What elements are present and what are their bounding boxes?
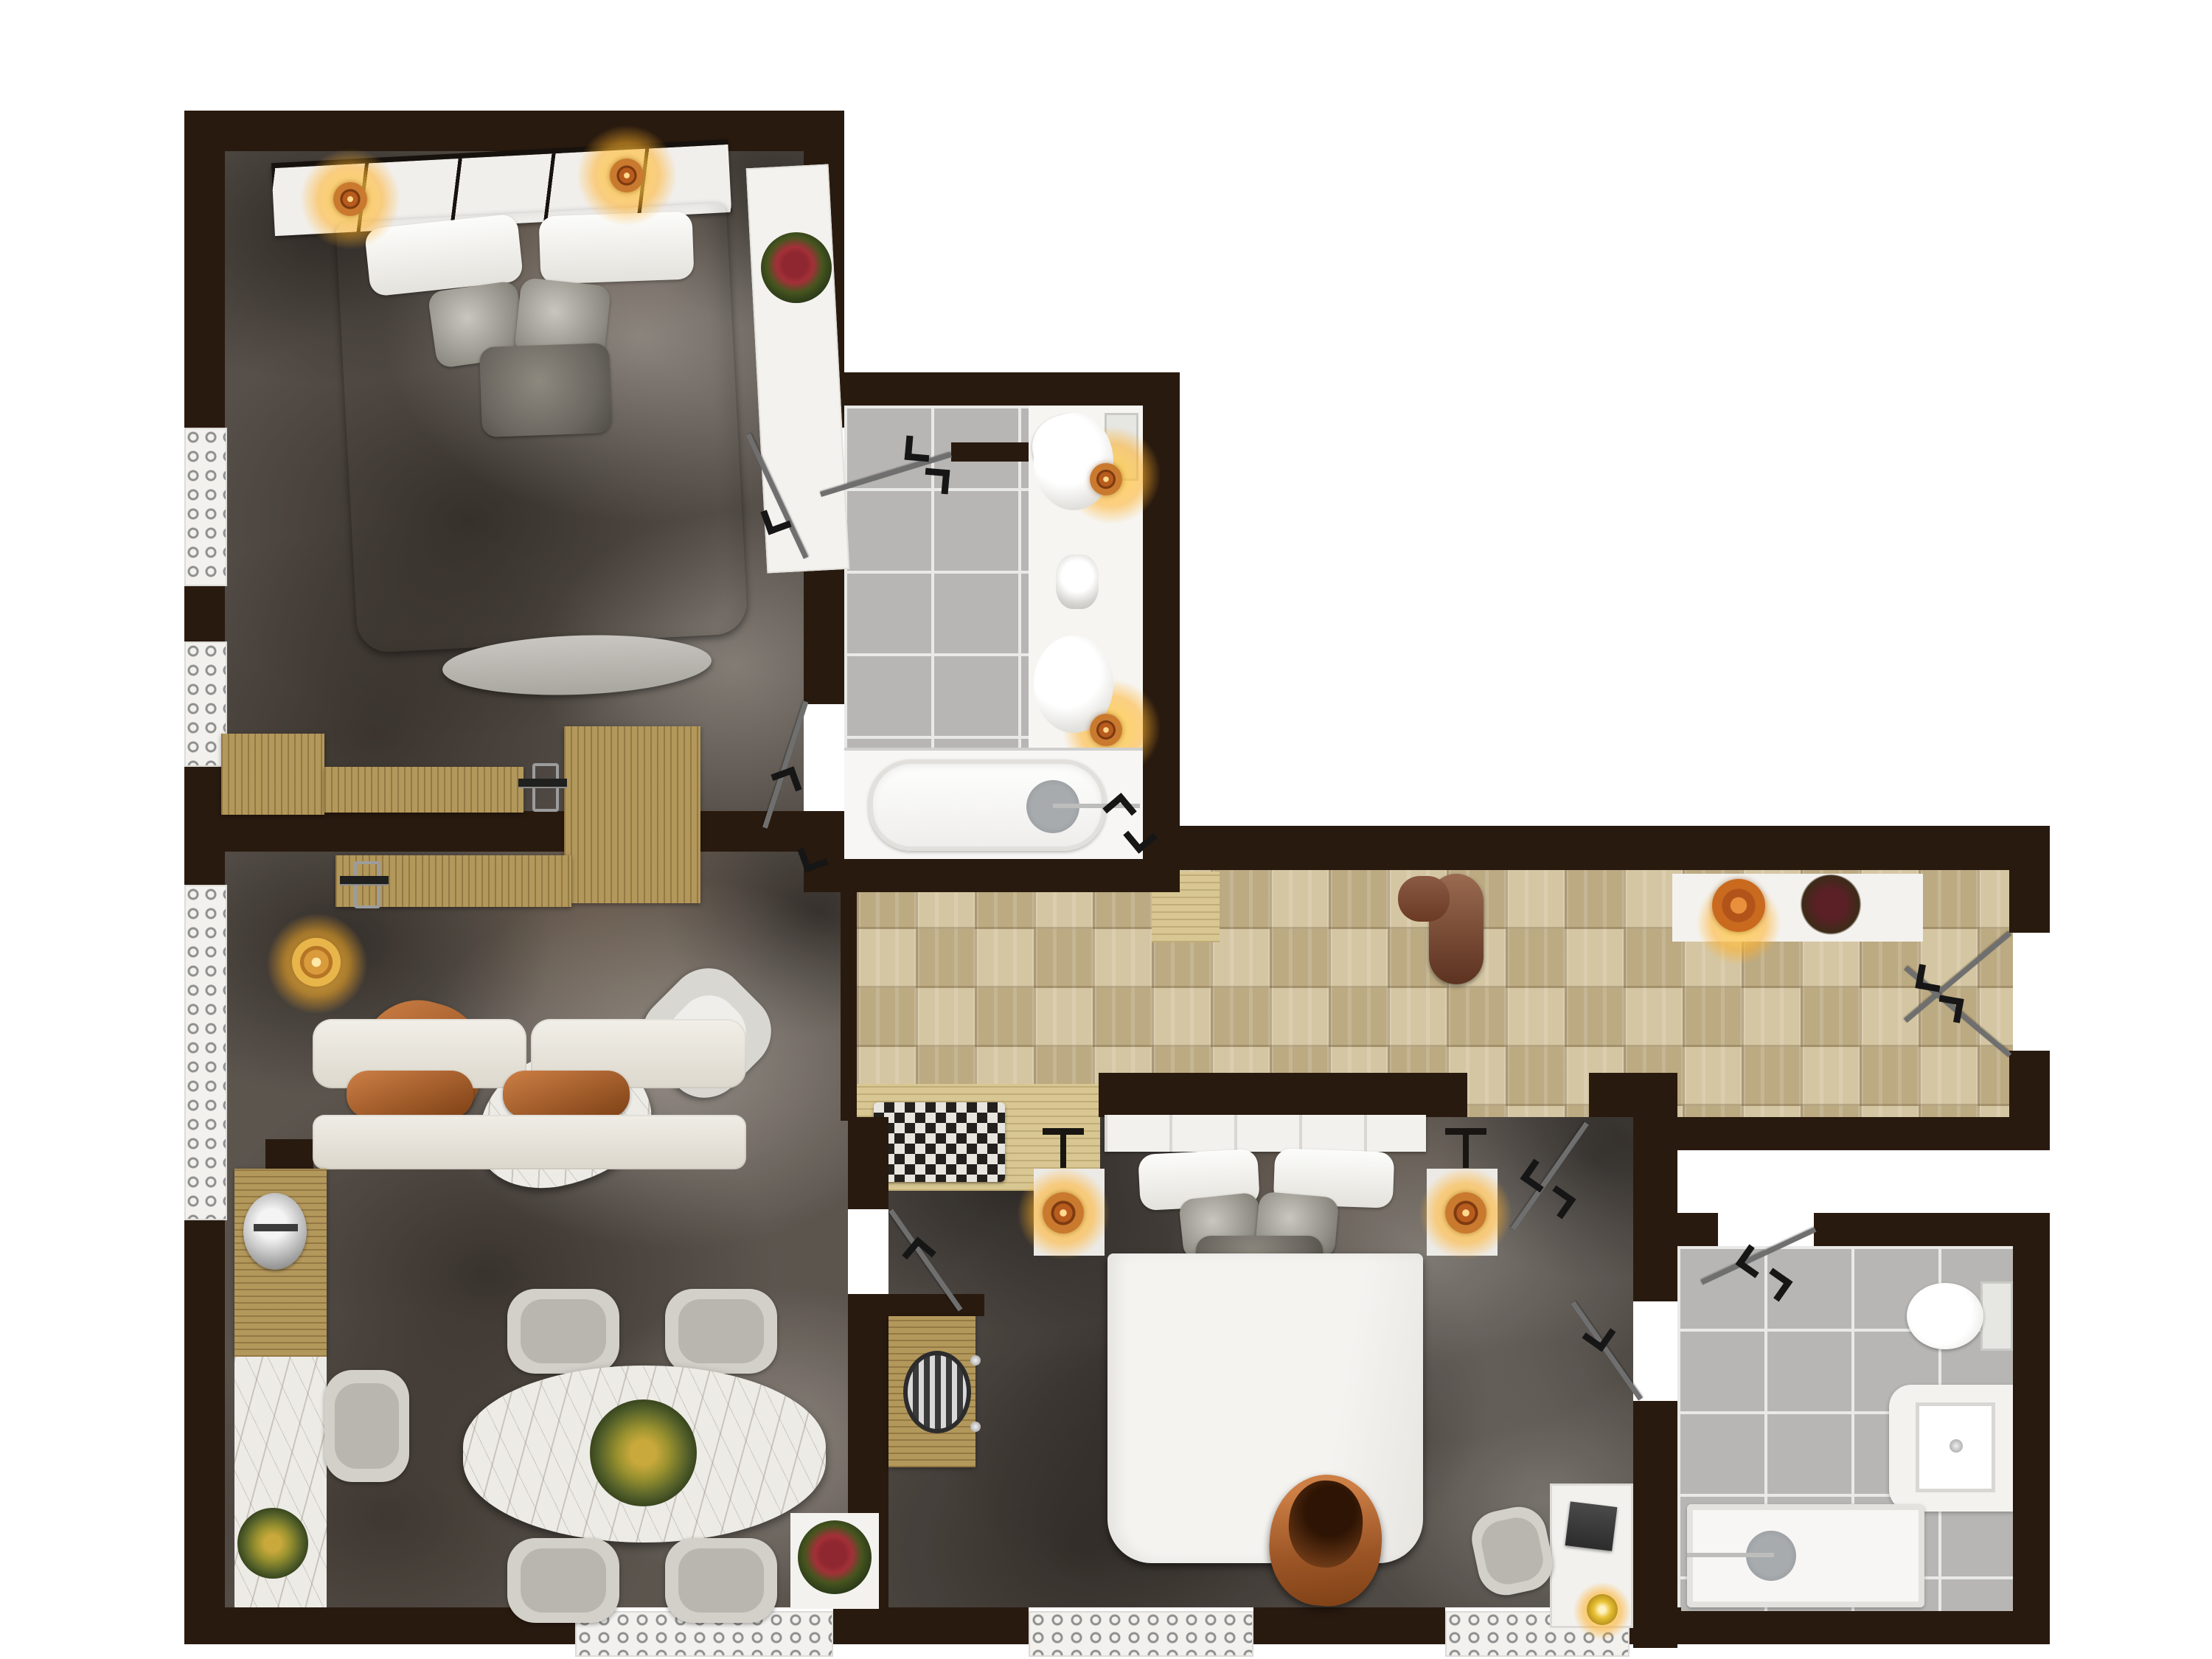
vanity2-faucet-icon (1950, 1439, 1963, 1453)
monitor-b-base (354, 861, 381, 908)
monitor-a-base (532, 763, 560, 811)
wall-bed2-right-1 (1633, 1073, 1677, 1301)
wall-divider-dining-bed2-1 (848, 1117, 888, 1209)
wall-bath-main-top (804, 372, 1180, 406)
side-table-right (564, 726, 700, 903)
window-living-left (184, 885, 227, 1220)
bed2-headboard (1105, 1115, 1426, 1152)
sideboard-silver-lamp-icon (243, 1193, 307, 1270)
wall-bath-main-bottom (804, 859, 1180, 892)
sofa-pillow-right (503, 1071, 630, 1118)
sconce-lamp-left-icon (333, 182, 367, 216)
lamp-arm-left-icon (1060, 1133, 1066, 1168)
monitor-a-screen (518, 779, 567, 787)
wall-left-2 (184, 586, 225, 641)
monitor-a-icon (516, 759, 569, 810)
lamp-arm-right-icon (1463, 1133, 1469, 1168)
runner-red-plant-icon (761, 232, 832, 303)
wall-hall-bottom-right (1644, 1117, 2050, 1150)
dining-chair-seat (521, 1548, 606, 1613)
sconce-lamp-right-icon (610, 159, 644, 192)
wall-living-hall-divider (841, 892, 857, 1121)
dining-chair-left (324, 1370, 409, 1482)
door-handle-icon (905, 436, 931, 462)
sofa-pillow-left (347, 1071, 473, 1118)
console-lamp-icon (1712, 879, 1765, 932)
lamp-arm-left-bar (1043, 1128, 1084, 1135)
sink-lamp-bottom-icon (1090, 714, 1122, 746)
toilet2-tank (1980, 1281, 2013, 1351)
desk-upper (324, 767, 524, 813)
vanity-faucet-icon (1056, 554, 1099, 609)
sink-bowl-top-icon (1034, 413, 1113, 510)
floor-lamp-icon (292, 938, 341, 987)
laptop-icon (1565, 1501, 1618, 1551)
bed-fur-throw (479, 343, 612, 437)
bedside-lamp-right-icon (1445, 1192, 1486, 1234)
wall-bath2-bottom (1644, 1611, 2050, 1644)
wall-nook-stub (848, 1294, 984, 1316)
wall-hall-top (1180, 826, 2050, 870)
desk-knob-2-icon (970, 1422, 981, 1432)
dining-chair-seat (678, 1548, 764, 1613)
wall-bottom-3 (1253, 1607, 1445, 1644)
window-bed2-bottom-1 (1029, 1611, 1253, 1657)
wall-bottom-2 (833, 1607, 1029, 1644)
sofa-back (313, 1115, 746, 1169)
coat-rack-arm (1398, 876, 1450, 922)
entrance-handle-2-icon (1935, 995, 1964, 1023)
desk-lamp-icon (1587, 1594, 1618, 1625)
dining-chair-top-left (507, 1289, 619, 1374)
sideboard-lamp-bar (254, 1224, 298, 1231)
dining-chair-seat (678, 1299, 764, 1363)
dining-chair-seat (521, 1299, 606, 1363)
shower-arm-line (1687, 1553, 1774, 1557)
desk-knob-1-icon (970, 1355, 981, 1366)
lamp-arm-right-bar (1445, 1128, 1486, 1135)
dining-red-plant-icon (798, 1520, 872, 1594)
dining-chair-bottom-left (507, 1538, 619, 1623)
dining-chair-top-right (665, 1289, 777, 1374)
wall-partition-desks (184, 811, 844, 852)
wall-bath2-right (2013, 1213, 2050, 1644)
wall-left-4 (184, 1220, 225, 1644)
gold-plant-icon (237, 1508, 308, 1579)
sink-lamp-top-icon (1090, 463, 1122, 495)
wall-left-1 (184, 111, 225, 428)
dining-chair-seat (335, 1383, 399, 1469)
wall-bath-main-left-2 (804, 557, 844, 704)
door-handle-icon (924, 468, 950, 495)
monitor-b-icon (338, 858, 391, 906)
side-table-left (221, 734, 324, 815)
desk-chair-seat (1478, 1514, 1547, 1589)
monitor-b-screen (340, 876, 389, 884)
entrance-handle-1-icon (1915, 964, 1943, 992)
dining-chair-bottom-right (665, 1538, 777, 1623)
wall-bath2-top-1 (1644, 1213, 1718, 1246)
window-masterbed-1 (184, 428, 227, 586)
wall-bed2-top-left (1099, 1073, 1467, 1117)
bw-entry-rug (874, 1102, 1005, 1182)
wall-masterbed-top (184, 111, 844, 151)
office-chair-icon (903, 1351, 971, 1433)
table-centerpiece-icon (590, 1399, 697, 1506)
toilet2-bowl-icon (1907, 1283, 1983, 1349)
wall-entrance-stub-top (2009, 870, 2050, 933)
bedside-lamp-left-icon (1043, 1192, 1084, 1234)
floor-plan (0, 0, 2212, 1659)
console-plant-icon (1798, 874, 1864, 941)
